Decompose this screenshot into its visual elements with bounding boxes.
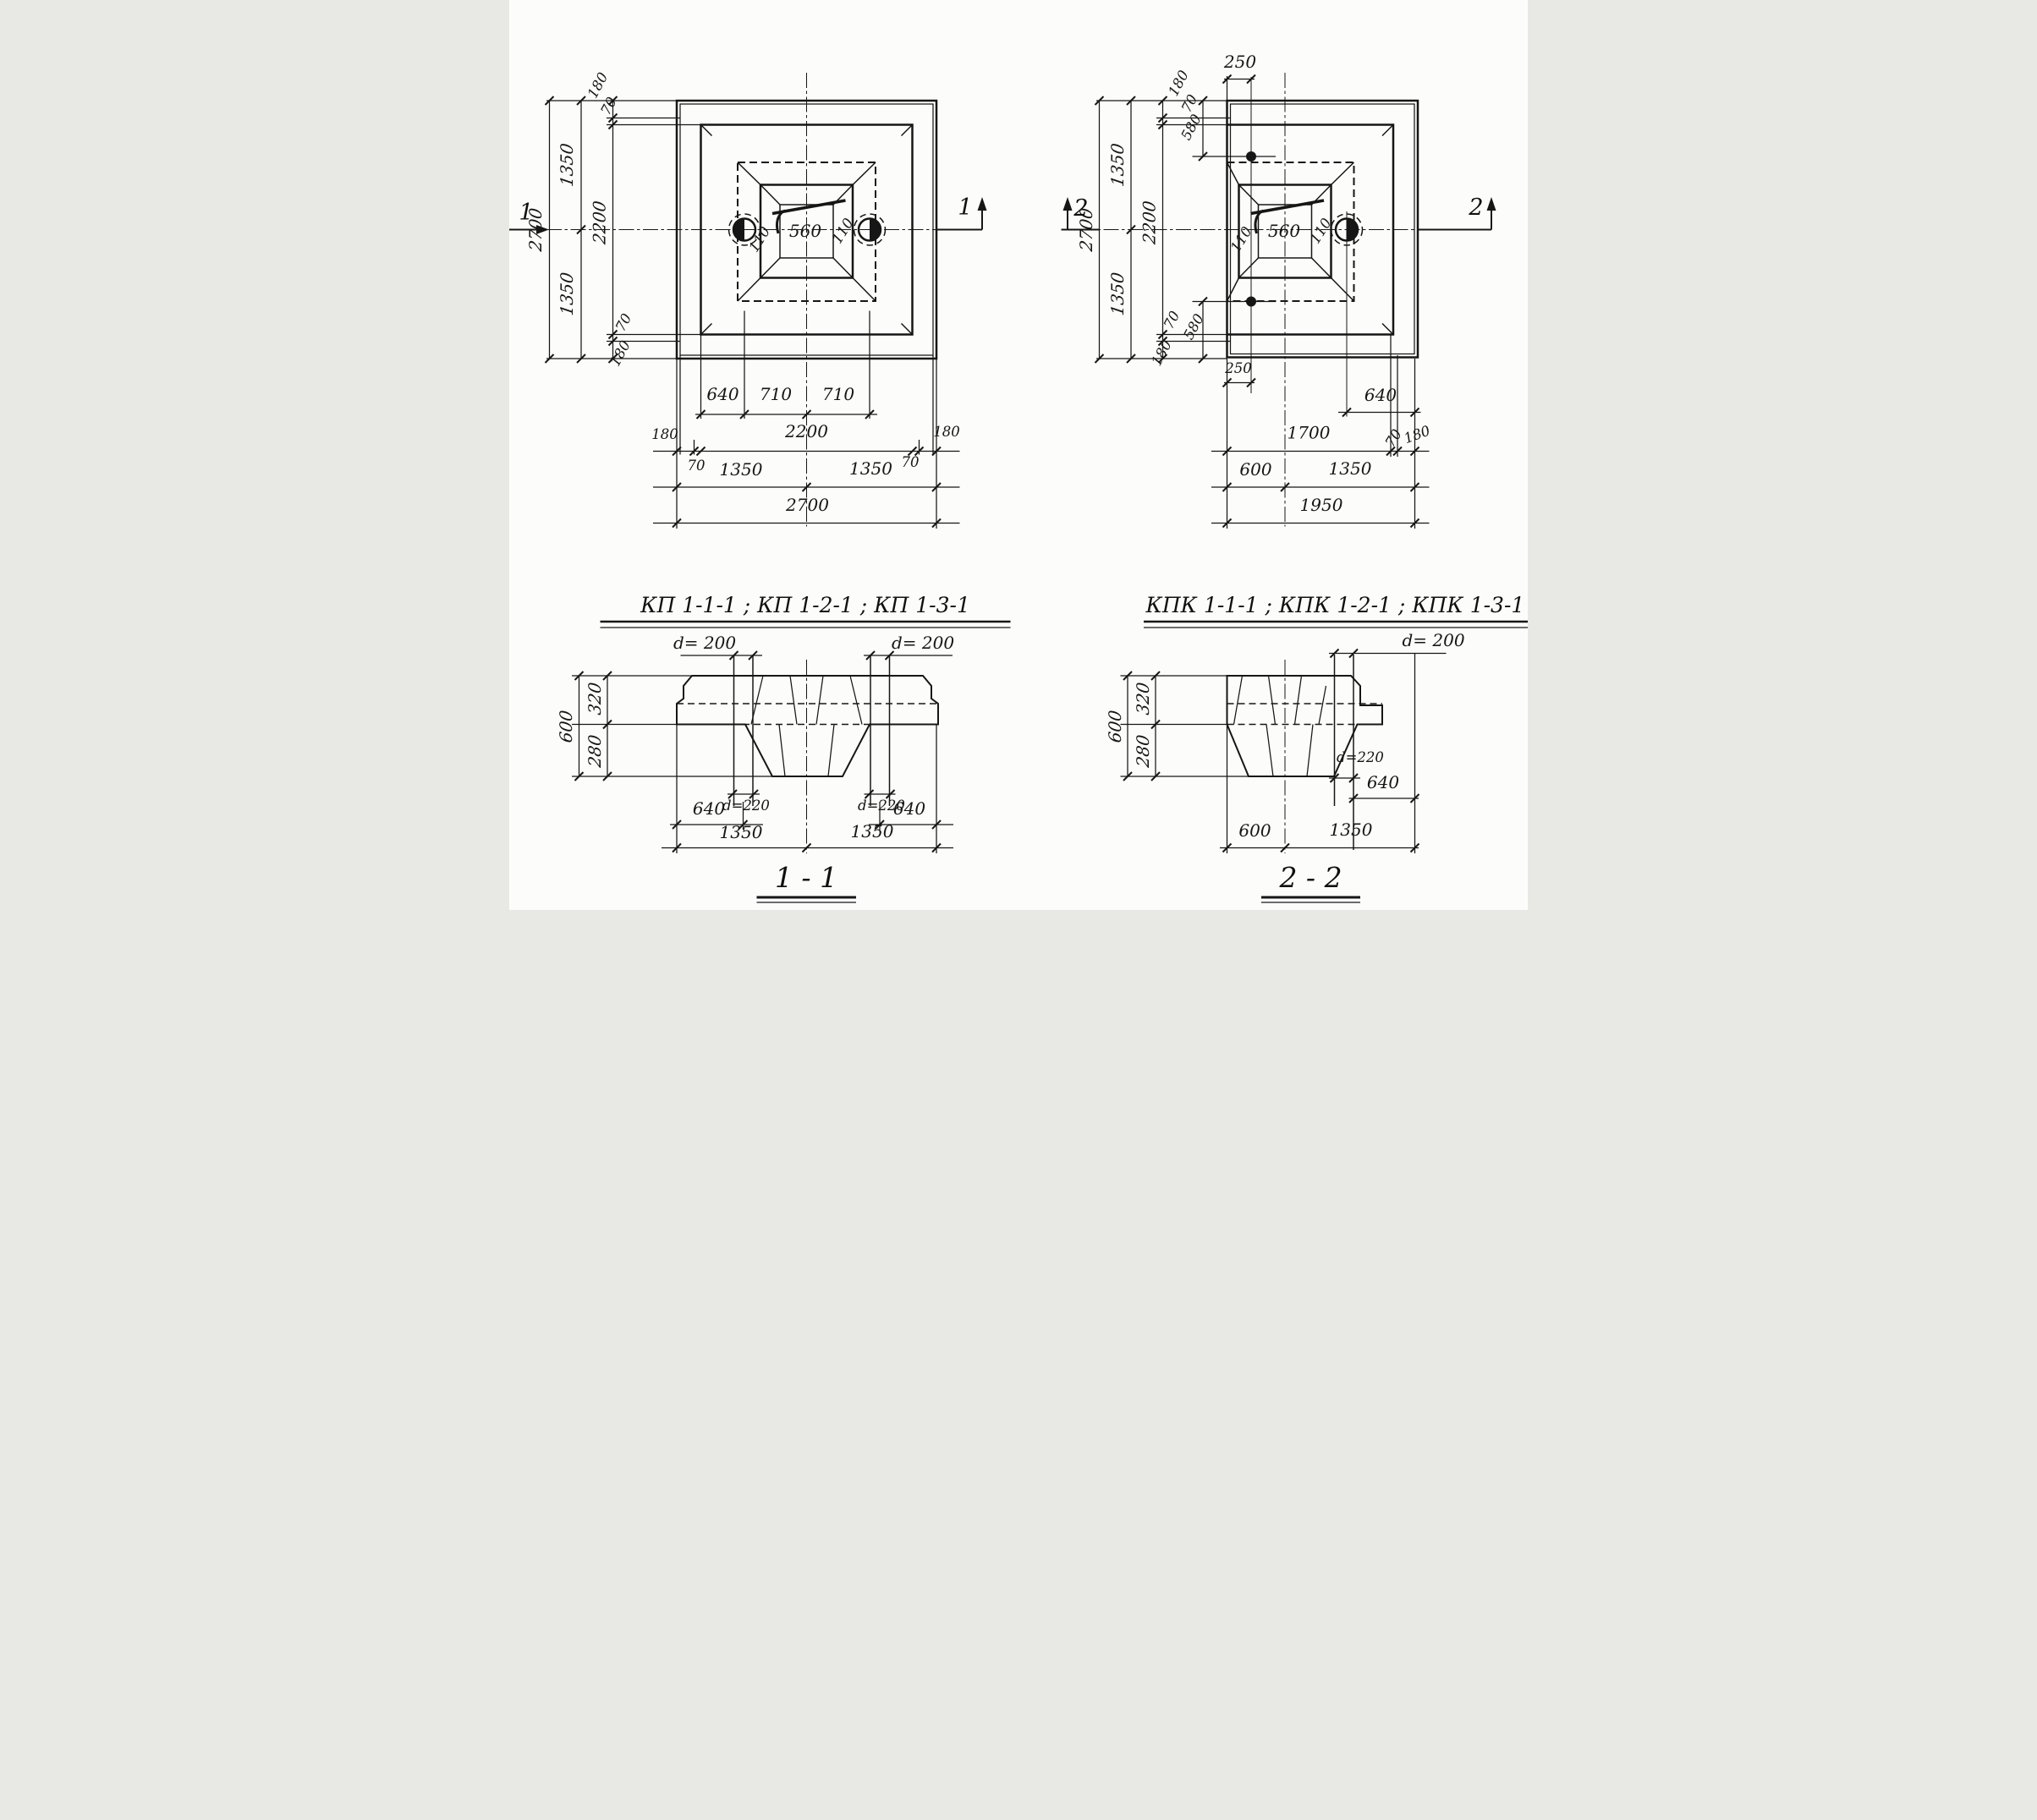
foundation-drawing: КП 1-1-1 ; КП 1-2-1 ; КП 1-3-1 КПК 1-1-1… <box>509 0 1528 910</box>
plan1-marker-left: 1 <box>519 200 533 226</box>
section2-dimension-lines <box>1121 650 1447 854</box>
plan1-dim-half-bottom: 1350 <box>557 271 577 316</box>
section1-sleeve-left: d=220 <box>722 798 770 814</box>
section1-pile-d-right: d= 200 <box>892 633 954 653</box>
section1-body <box>677 655 938 853</box>
section1-half-right: 1350 <box>851 821 894 841</box>
section1-pile-d-left: d= 200 <box>673 633 736 653</box>
plan1-dim-edge-right: 180 <box>933 424 960 440</box>
section2-pile-d: d= 200 <box>1402 630 1464 650</box>
plan2-dim-overall-bottom: 1950 <box>1300 495 1343 515</box>
section1-dimension-lines <box>572 651 953 853</box>
plan2-dim-edge-right: 180 <box>1402 423 1432 447</box>
plan1-dim-pile-offset: 640 <box>706 384 738 404</box>
plan2-dim-edge-bottom: 180 <box>1148 337 1175 369</box>
plan2-marker-right: 2 <box>1468 195 1483 221</box>
section1-pile-off-left: 640 <box>693 798 725 819</box>
plan2-dim-anchor-offset-bottom: 250 <box>1224 360 1252 376</box>
section1-dim-lower: 280 <box>585 733 605 770</box>
section2-pile-off: 640 <box>1367 772 1399 792</box>
plan2-dim-pile-offset: 640 <box>1364 385 1397 405</box>
titles: КП 1-1-1 ; КП 1-2-1 ; КП 1-3-1 КПК 1-1-1… <box>601 593 1529 628</box>
plan2-dim-col-offset: 600 <box>1239 459 1271 480</box>
plan2-dim-anchor-offset-top: 250 <box>1223 52 1256 72</box>
section1-labels: d= 200 d= 200 600 320 280 d=220 d=220 64… <box>556 633 954 894</box>
plan1-dim-half-left: 1350 <box>720 459 763 480</box>
plan2-dim-socket: 560 <box>1268 221 1300 241</box>
plan1-dim-lip-right-bottom: 70 <box>902 454 920 470</box>
section1-dim-height: 600 <box>556 709 576 744</box>
plan2-dim-half-top: 1350 <box>1107 142 1128 188</box>
plan1-dim-socket-lip-left: 110 <box>745 224 773 255</box>
section2-half: 1350 <box>1330 820 1373 840</box>
plan2-dim-anchor-top: 580 <box>1178 112 1205 143</box>
plan2-dim-half-right: 1350 <box>1329 458 1372 479</box>
plan2-dim-half-bottom: 1350 <box>1107 271 1128 316</box>
plan1-title: КП 1-1-1 ; КП 1-2-1 ; КП 1-3-1 <box>640 593 970 617</box>
plan1-marker-right: 1 <box>958 195 972 221</box>
section2-dim-lower: 280 <box>1133 733 1153 770</box>
plan1-dim-inner-bottom: 2200 <box>784 421 828 441</box>
section1-pile-off-right: 640 <box>893 798 925 819</box>
plan1-dim-lip-left-bottom: 70 <box>688 458 706 474</box>
plan2-title: КПК 1-1-1 ; КПК 1-2-1 ; КПК 1-3-1 <box>1145 593 1525 617</box>
plan1-dim-inner-left: 2200 <box>590 200 610 246</box>
plan1-dim-pile-right: 710 <box>822 384 854 404</box>
plan1-dim-overall-bottom: 2700 <box>785 495 829 515</box>
section1-label: 1 - 1 <box>775 861 837 894</box>
plan2-dim-lip-top: 70 <box>1178 92 1201 115</box>
plan1-dim-half-top: 1350 <box>557 142 577 188</box>
section2-col-offset: 600 <box>1238 820 1271 841</box>
plan1-dim-socket: 560 <box>789 221 821 241</box>
section1-dim-upper: 320 <box>585 681 605 716</box>
section1-half-left: 1350 <box>720 822 763 842</box>
drawing-sheet: КП 1-1-1 ; КП 1-2-1 ; КП 1-3-1 КПК 1-1-1… <box>509 0 1528 910</box>
section2-sleeve: d=220 <box>1337 749 1384 765</box>
plan1-dim-half-right: 1350 <box>849 458 892 479</box>
plan2-marker-left: 2 <box>1073 195 1088 222</box>
section2-dim-height: 600 <box>1105 709 1125 744</box>
plan2-dim-inner-left: 2200 <box>1139 200 1160 246</box>
plan1-dim-pile-left: 710 <box>760 384 792 404</box>
plan2-dim-lip-right: 70 <box>1382 426 1405 450</box>
plan1-dim-edge-left: 180 <box>651 426 678 442</box>
plan2-dim-inner-bottom: 1700 <box>1288 423 1331 443</box>
plan2-dim-lip-bottom: 70 <box>1161 309 1183 332</box>
section2-dim-upper: 320 <box>1133 681 1153 716</box>
plan2-labels: 2700 1350 1350 2200 180 70 580 70 580 18… <box>1073 52 1483 515</box>
section2-label: 2 - 2 <box>1278 861 1342 894</box>
